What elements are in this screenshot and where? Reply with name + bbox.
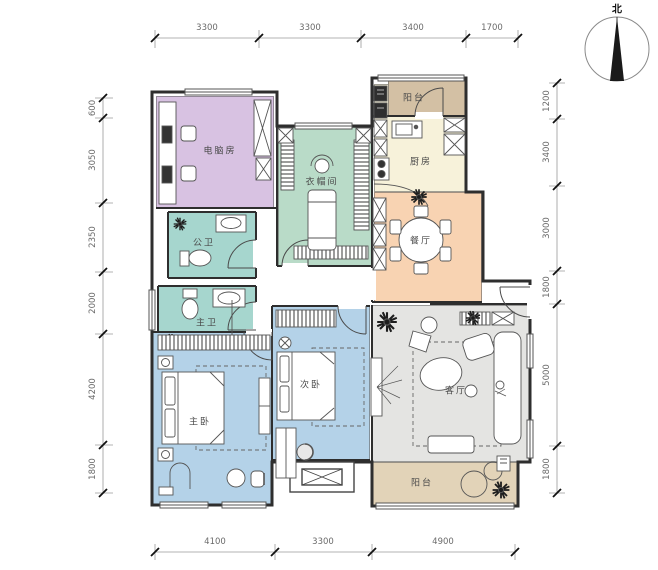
dim-left-0: 600 xyxy=(88,100,98,116)
dim-left-5: 1800 xyxy=(88,458,98,480)
dim-top-3: 1700 xyxy=(481,23,503,33)
bay-window-box xyxy=(290,462,354,492)
north-label: 北 xyxy=(612,1,622,16)
master-bedroom-furniture xyxy=(158,335,270,495)
dim-left-3: 2000 xyxy=(88,292,98,314)
dim-bottom-1: 3300 xyxy=(312,537,334,547)
room-label-balcony-bottom: 阳台 xyxy=(411,476,433,489)
second-bedroom-furniture xyxy=(276,310,364,478)
north-arrow-icon xyxy=(585,17,649,81)
dim-top-2: 3400 xyxy=(402,23,424,33)
dim-top-1: 3300 xyxy=(299,23,321,33)
floor-plan-canvas: 电脑房 衣帽间 阳台 厨房 餐厅 公卫 主卫 主卧 次卧 客厅 阳台 3300 … xyxy=(0,0,658,570)
room-label-bath-public: 公卫 xyxy=(193,236,215,249)
dim-bottom-2: 4900 xyxy=(432,537,454,547)
dim-left-1: 3050 xyxy=(88,149,98,171)
dim-right-5: 1800 xyxy=(542,458,552,480)
dim-right-1: 3400 xyxy=(542,141,552,163)
room-label-cloakroom: 衣帽间 xyxy=(305,175,338,188)
room-label-computer: 电脑房 xyxy=(203,144,236,157)
dim-left-2: 2350 xyxy=(88,226,98,248)
balcony-bottom-furniture xyxy=(461,456,510,498)
room-label-bath-master: 主卫 xyxy=(196,316,218,329)
living-room-furniture xyxy=(371,311,521,453)
cloakroom-furniture xyxy=(278,128,371,259)
room-label-dining: 餐厅 xyxy=(410,234,432,247)
dim-right-0: 1200 xyxy=(542,90,552,112)
dim-top-0: 3300 xyxy=(196,23,218,33)
dim-left-4: 4200 xyxy=(88,378,98,400)
kitchen-furniture xyxy=(374,86,465,206)
dim-bottom-0: 4100 xyxy=(204,537,226,547)
plan-linework xyxy=(0,0,658,570)
room-label-balcony-top: 阳台 xyxy=(403,91,425,104)
room-label-master-bedroom: 主卧 xyxy=(189,415,211,428)
room-label-kitchen: 厨房 xyxy=(410,155,432,168)
dim-right-2: 3000 xyxy=(542,217,552,239)
dim-right-3: 1800 xyxy=(542,276,552,298)
room-label-second-bedroom: 次卧 xyxy=(300,378,322,391)
dim-right-4: 5000 xyxy=(542,364,552,386)
room-label-living: 客厅 xyxy=(445,384,467,397)
